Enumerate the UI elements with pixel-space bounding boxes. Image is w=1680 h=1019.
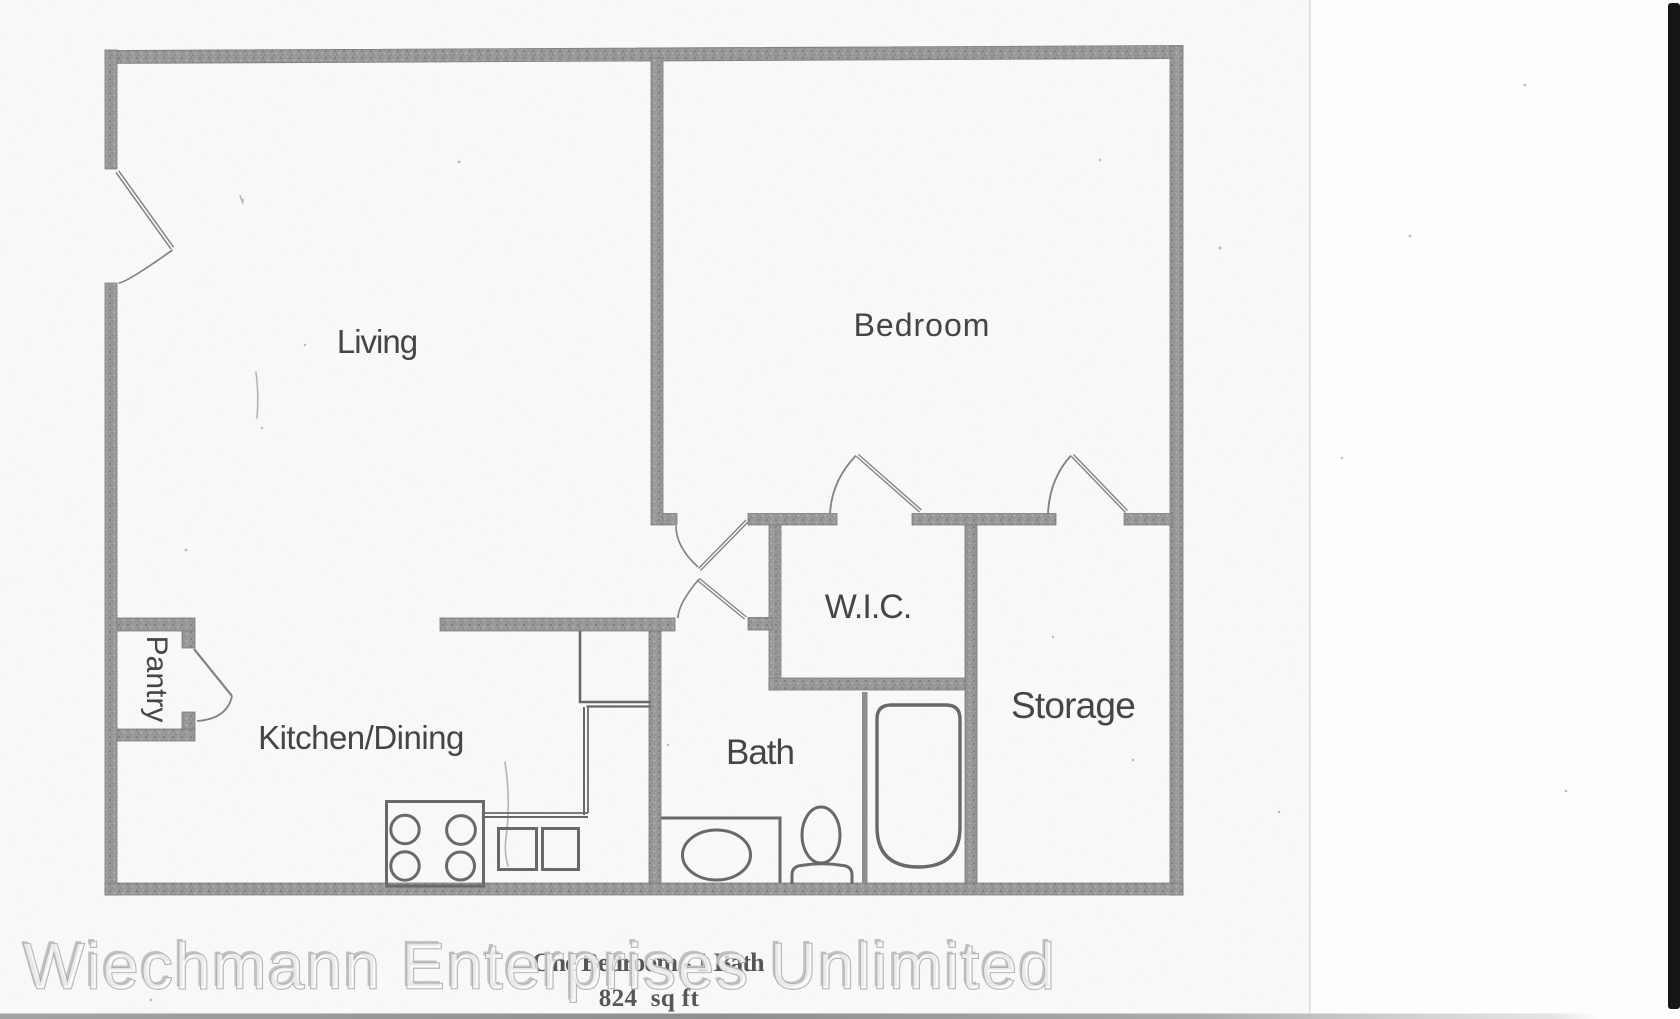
svg-text:Bedroom: Bedroom	[854, 307, 991, 343]
svg-text:Storage: Storage	[1011, 685, 1135, 726]
svg-text:Wiechmann Enterprises Unlimite: Wiechmann Enterprises Unlimited	[24, 931, 1057, 1003]
svg-text:W.I.C.: W.I.C.	[825, 588, 912, 626]
svg-text:Bath: Bath	[726, 733, 794, 772]
svg-text:Living: Living	[337, 323, 417, 360]
svg-text:Pantry: Pantry	[140, 636, 173, 723]
svg-text:Kitchen/Dining: Kitchen/Dining	[258, 719, 464, 756]
